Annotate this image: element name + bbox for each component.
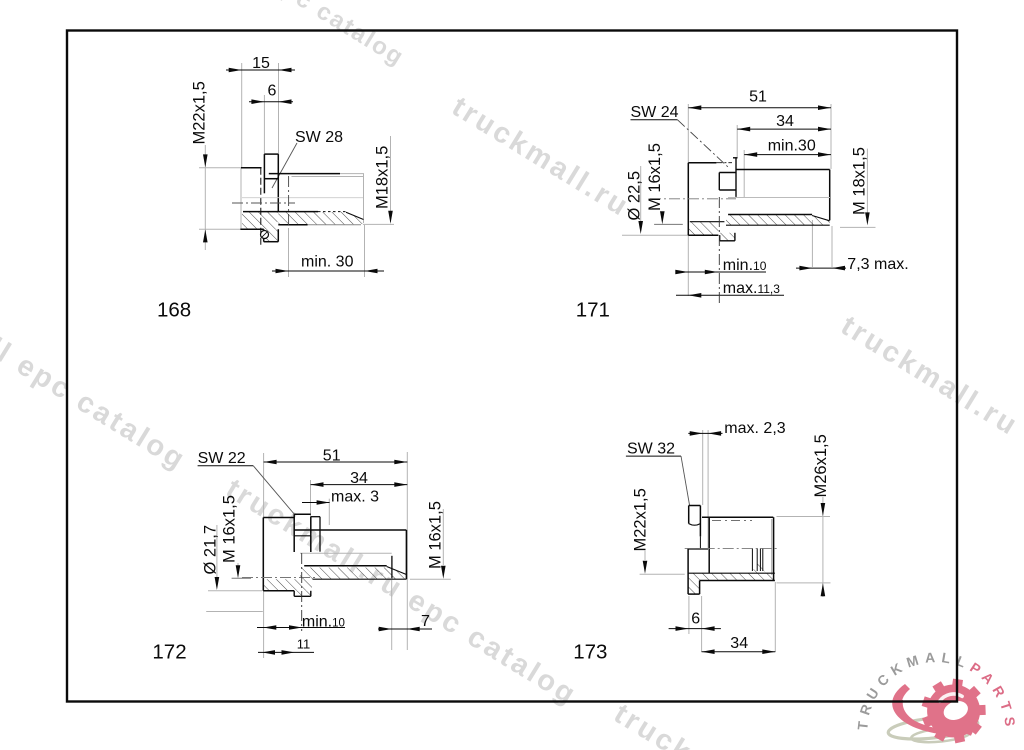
svg-text:SW 32: SW 32: [627, 441, 675, 458]
svg-text:Ø 22,5: Ø 22,5: [626, 171, 644, 221]
svg-text:max. 2,3: max. 2,3: [724, 420, 785, 437]
svg-text:Ø 21,7: Ø 21,7: [202, 525, 220, 575]
svg-text:173: 173: [573, 641, 607, 664]
svg-text:max. 3: max. 3: [331, 489, 379, 506]
svg-text:min.30: min.30: [768, 138, 816, 155]
svg-text:34: 34: [776, 113, 794, 130]
svg-text:M26x1,5: M26x1,5: [812, 434, 830, 497]
svg-text:172: 172: [152, 641, 186, 664]
svg-text:11: 11: [297, 637, 311, 652]
svg-text:15: 15: [252, 55, 270, 72]
svg-text:min.10: min.10: [723, 257, 767, 274]
svg-text:7,3 max.: 7,3 max.: [847, 256, 908, 273]
svg-text:168: 168: [157, 299, 191, 322]
svg-text:M 18x1,5: M 18x1,5: [851, 147, 869, 215]
svg-text:min. 30: min. 30: [301, 254, 354, 271]
svg-text:SW 24: SW 24: [631, 104, 679, 121]
svg-text:51: 51: [323, 448, 341, 465]
svg-text:max.11,3: max.11,3: [723, 280, 780, 297]
svg-text:M 16x1,5: M 16x1,5: [646, 143, 664, 211]
svg-text:7: 7: [421, 613, 430, 630]
svg-text:M22x1,5: M22x1,5: [191, 81, 209, 144]
svg-text:M18x1,5: M18x1,5: [374, 146, 392, 209]
svg-text:M22x1,5: M22x1,5: [632, 488, 650, 551]
svg-text:171: 171: [576, 299, 610, 322]
svg-text:SW 28: SW 28: [295, 129, 343, 146]
svg-text:34: 34: [350, 470, 368, 487]
svg-text:51: 51: [749, 89, 767, 106]
svg-text:SW 22: SW 22: [198, 450, 246, 467]
svg-text:6: 6: [691, 611, 700, 628]
svg-text:6: 6: [268, 83, 277, 100]
svg-text:34: 34: [730, 635, 748, 652]
svg-text:M 16x1,5: M 16x1,5: [427, 501, 445, 569]
svg-text:M 16x1,5: M 16x1,5: [221, 495, 239, 563]
